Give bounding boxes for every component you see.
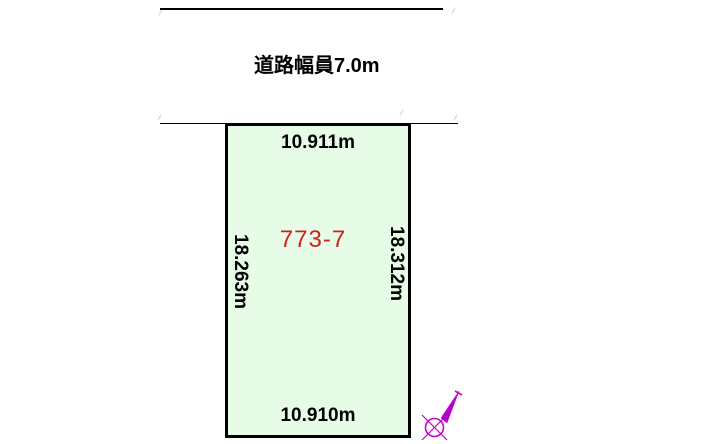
road-edge-line-far	[160, 8, 443, 10]
parcel-number-label: 773-7	[228, 226, 398, 254]
tick-mark	[158, 9, 162, 16]
tick-mark	[157, 114, 161, 121]
plot-diagram-canvas: 道路幅員7.0m 10.911m 18.263m 18.312m 10.910m…	[0, 0, 703, 444]
north-arrow-icon	[419, 389, 465, 443]
tick-mark	[399, 109, 403, 116]
parcel-top-dimension-label: 10.911m	[228, 132, 408, 154]
parcel-shape: 10.911m 18.263m 18.312m 10.910m 773-7	[225, 123, 411, 438]
parcel-bottom-dimension-label: 10.910m	[228, 405, 408, 427]
tick-mark	[453, 114, 457, 121]
road-width-label: 道路幅員7.0m	[254, 49, 380, 78]
tick-mark	[451, 7, 455, 14]
